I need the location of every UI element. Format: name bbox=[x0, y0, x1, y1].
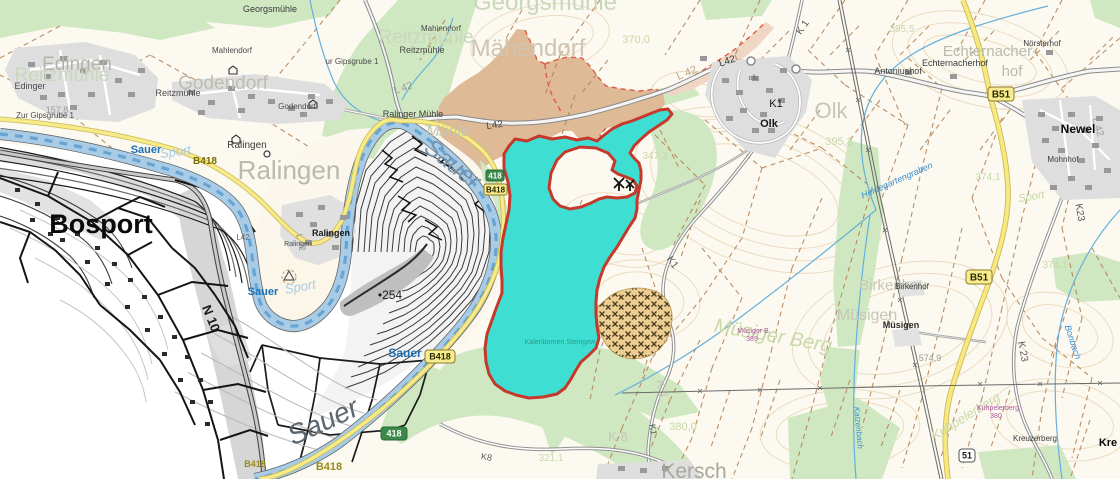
svg-text:374,1: 374,1 bbox=[975, 172, 1000, 183]
svg-text:418: 418 bbox=[386, 429, 401, 439]
svg-text:B418: B418 bbox=[316, 461, 342, 473]
svg-text:395,5: 395,5 bbox=[889, 24, 914, 35]
svg-text:B418: B418 bbox=[193, 156, 217, 167]
svg-text:Nörsterhof: Nörsterhof bbox=[1023, 39, 1061, 48]
svg-text:Kuhpelerberg: Kuhpelerberg bbox=[977, 405, 1019, 412]
svg-text:Mähendorf: Mähendorf bbox=[471, 35, 586, 62]
svg-text:Müsigen: Müsigen bbox=[883, 320, 920, 330]
svg-text:374,1: 374,1 bbox=[1042, 260, 1067, 271]
svg-text:321,1: 321,1 bbox=[538, 453, 563, 464]
svg-text:Godendorf: Godendorf bbox=[278, 102, 317, 111]
svg-text:Olk: Olk bbox=[760, 118, 779, 130]
svg-text:Müsiger B.: Müsiger B. bbox=[737, 328, 771, 335]
svg-text:Mahlendorf: Mahlendorf bbox=[212, 46, 253, 55]
svg-text:Mühle: Mühle bbox=[426, 123, 470, 140]
svg-text:ur Gipsgrube 1: ur Gipsgrube 1 bbox=[326, 57, 379, 66]
svg-text:Ralinger Mühle: Ralinger Mühle bbox=[383, 109, 444, 119]
svg-text:Ralingen: Ralingen bbox=[227, 140, 266, 151]
svg-text:Reitzmühle: Reitzmühle bbox=[155, 88, 200, 98]
svg-text:Newel: Newel bbox=[1061, 122, 1096, 136]
svg-text:Georgsmühle: Georgsmühle bbox=[243, 4, 297, 14]
svg-text:K1: K1 bbox=[647, 423, 659, 436]
svg-text:•254: •254 bbox=[378, 288, 403, 302]
svg-text:Sauer: Sauer bbox=[131, 144, 162, 156]
svg-text:K 8: K 8 bbox=[608, 429, 628, 444]
svg-text:376,0: 376,0 bbox=[427, 37, 452, 48]
svg-text:51: 51 bbox=[962, 451, 972, 461]
svg-text:Kreuzerberg: Kreuzerberg bbox=[1013, 434, 1057, 443]
svg-text:olk: olk bbox=[749, 75, 758, 82]
svg-text:370,0: 370,0 bbox=[622, 34, 650, 46]
svg-text:Sauer: Sauer bbox=[248, 286, 279, 298]
svg-text:418: 418 bbox=[488, 172, 502, 181]
svg-text:Antoniushof: Antoniushof bbox=[874, 66, 922, 76]
svg-text:395,3: 395,3 bbox=[825, 136, 853, 148]
svg-text:Olk: Olk bbox=[815, 98, 849, 123]
svg-text:K8: K8 bbox=[480, 451, 493, 463]
svg-text:347,3: 347,3 bbox=[642, 151, 667, 162]
svg-text:Birkenhof: Birkenhof bbox=[895, 282, 930, 291]
svg-text:389: 389 bbox=[746, 336, 758, 343]
svg-text:Kalenbornen Steingew: Kalenbornen Steingew bbox=[525, 339, 596, 346]
svg-text:hof: hof bbox=[1002, 63, 1024, 80]
svg-text:Reitzmühle: Reitzmühle bbox=[14, 65, 109, 86]
svg-text:B51: B51 bbox=[970, 273, 989, 284]
svg-text:B418: B418 bbox=[429, 352, 451, 362]
svg-text:Zur Gipsgrube 1: Zur Gipsgrube 1 bbox=[16, 111, 74, 120]
svg-text:K1: K1 bbox=[769, 98, 782, 110]
svg-text:B418: B418 bbox=[486, 186, 506, 195]
svg-text:Mohnhof: Mohnhof bbox=[1047, 155, 1079, 164]
svg-text:Kre: Kre bbox=[1099, 437, 1117, 449]
svg-text:B418: B418 bbox=[244, 459, 266, 469]
svg-text:574,9: 574,9 bbox=[919, 353, 942, 363]
svg-text:Sauer: Sauer bbox=[388, 346, 422, 360]
svg-text:380: 380 bbox=[990, 413, 1002, 420]
svg-text:380,0: 380,0 bbox=[669, 421, 697, 433]
svg-text:Bosport: Bosport bbox=[49, 209, 153, 239]
svg-text:L42: L42 bbox=[236, 233, 250, 242]
svg-text:Ralingen: Ralingen bbox=[238, 155, 341, 185]
svg-text:Ralingen: Ralingen bbox=[312, 228, 350, 238]
svg-text:B51: B51 bbox=[992, 90, 1011, 101]
svg-text:Kersch: Kersch bbox=[661, 460, 726, 479]
svg-text:Georgsmühle: Georgsmühle bbox=[473, 0, 617, 16]
